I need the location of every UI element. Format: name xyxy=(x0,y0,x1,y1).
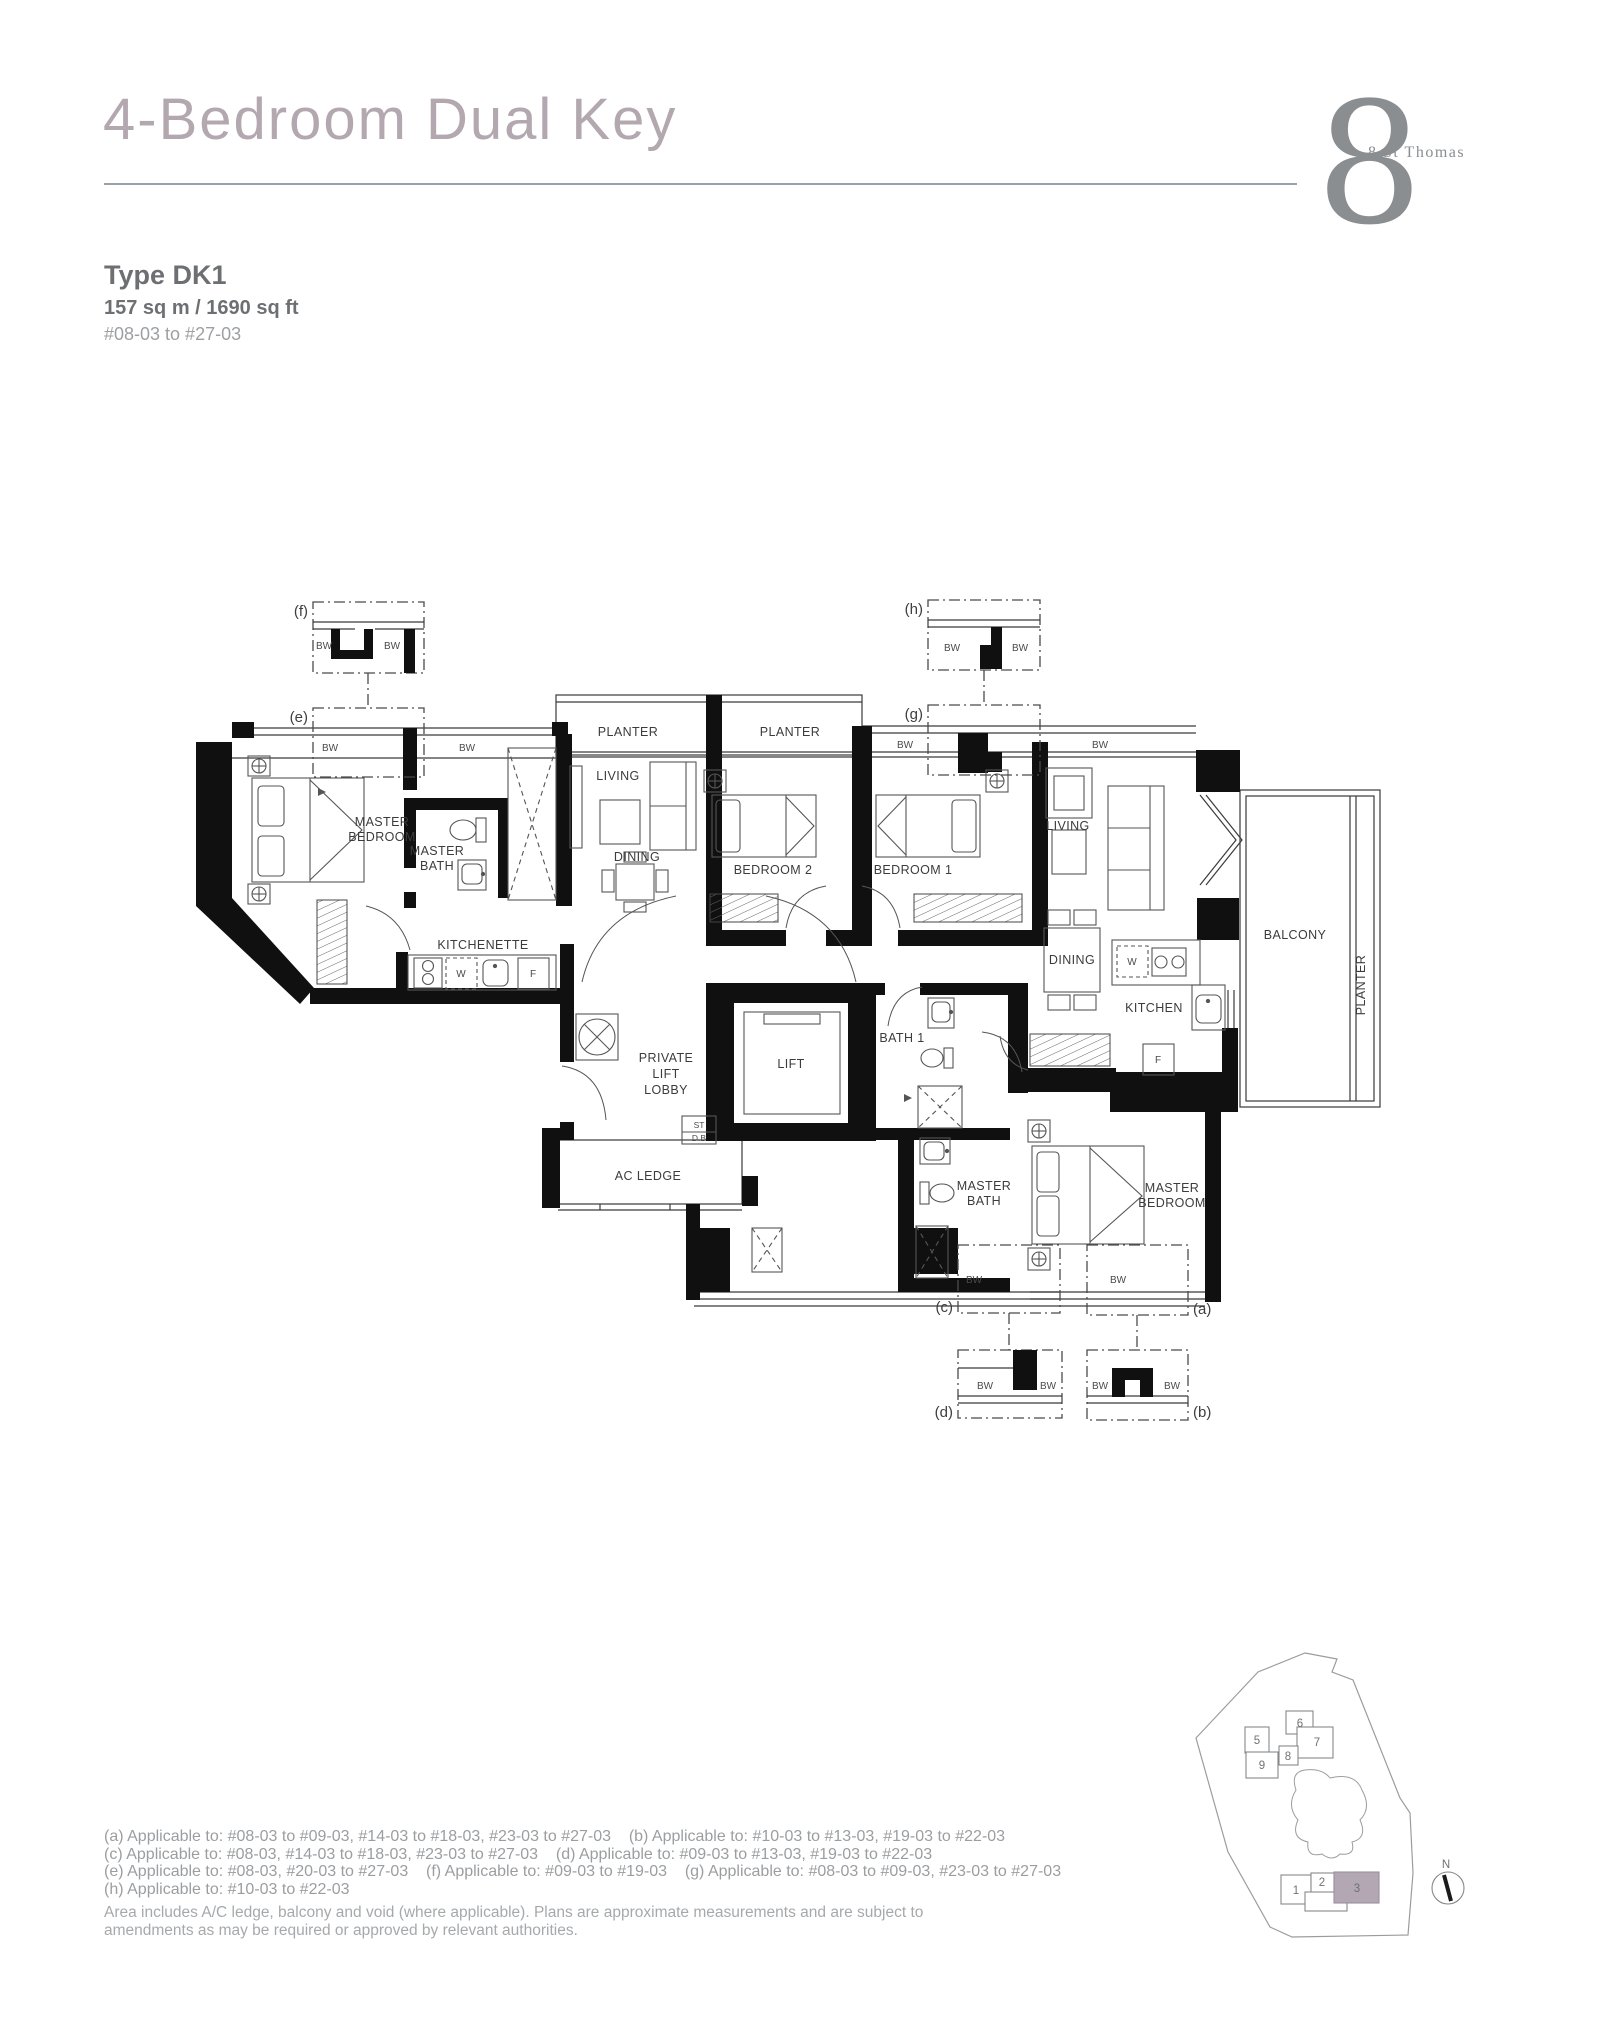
label-db: D.B xyxy=(692,1133,707,1143)
label-kitchenette: KITCHENETTE xyxy=(437,938,528,952)
label-bedroom-1: BEDROOM 1 xyxy=(874,863,953,877)
site-num-3: 3 xyxy=(1354,1883,1360,1895)
nightstand-lamp-icon-mbr xyxy=(1028,1120,1050,1270)
bw-11: BW xyxy=(977,1381,994,1392)
bw-13: BW xyxy=(1092,1381,1109,1392)
site-plan: 5 6 7 8 9 1 2 3 N xyxy=(1196,1653,1464,1937)
toilet-icon-bath-1 xyxy=(921,1048,953,1068)
footnote-line-2: (c) Applicable to: #08-03, #14-03 to #18… xyxy=(104,1846,1061,1864)
bw-1: BW xyxy=(322,743,339,754)
label-dining-left: DINING xyxy=(614,850,660,864)
label-fridge-left: F xyxy=(530,969,536,980)
label-bath-1: BATH 1 xyxy=(879,1031,924,1045)
door-marker-icon xyxy=(904,1094,912,1102)
sink-icon-bath-1 xyxy=(928,998,954,1028)
footnote-line-3: (e) Applicable to: #08-03, #20-03 to #27… xyxy=(104,1863,1061,1881)
disclaimer: Area includes A/C ledge, balcony and voi… xyxy=(104,1904,984,1939)
label-master-bedroom-left-2: BEDROOM xyxy=(348,830,415,844)
sofa-right xyxy=(1108,786,1164,910)
site-landscape xyxy=(1291,1770,1366,1858)
label-living-right: LIVING xyxy=(1046,819,1089,833)
bed-bedroom-1 xyxy=(876,795,980,857)
label-ac-ledge: AC LEDGE xyxy=(615,1169,681,1183)
label-planter-1: PLANTER xyxy=(598,725,658,739)
bed-bedroom-2 xyxy=(712,795,816,857)
label-washer-right: W xyxy=(1127,957,1137,968)
label-planter-2: PLANTER xyxy=(760,725,820,739)
coffee-table-right xyxy=(1052,830,1086,874)
bw-10: BW xyxy=(1110,1275,1127,1286)
label-master-bedroom-right-1: MASTER xyxy=(1145,1181,1200,1195)
callout-h: (h) xyxy=(905,601,923,618)
bw-2: BW xyxy=(459,743,476,754)
coffee-table-left xyxy=(600,800,640,844)
label-master-bath-right-2: BATH xyxy=(967,1194,1001,1208)
label-private-lift-lobby-1: PRIVATE xyxy=(639,1051,693,1065)
label-balcony: BALCONY xyxy=(1264,928,1327,942)
site-num-2: 2 xyxy=(1319,1877,1325,1889)
label-master-bath-left-2: BATH xyxy=(420,859,454,873)
site-num-8: 8 xyxy=(1285,1751,1291,1763)
label-lift: LIFT xyxy=(777,1057,804,1071)
callout-g: (g) xyxy=(905,706,923,723)
footnotes: (a) Applicable to: #08-03 to #09-03, #14… xyxy=(104,1828,1061,1898)
footnote-line-4: (h) Applicable to: #10-03 to #22-03 xyxy=(104,1881,1061,1899)
wardrobe-x-left xyxy=(508,748,556,900)
callout-b: (b) xyxy=(1193,1404,1211,1421)
label-st: ST xyxy=(694,1120,705,1130)
bw-14: BW xyxy=(1164,1381,1181,1392)
bw-9: BW xyxy=(966,1275,983,1286)
callout-d: (d) xyxy=(935,1404,953,1421)
brochure-page: 4-Bedroom Dual Key 8 8 St Thomas Type DK… xyxy=(0,0,1600,2042)
sink-icon-master-bath-left xyxy=(458,860,486,890)
bw-3: BW xyxy=(897,740,914,751)
label-dining-right: DINING xyxy=(1049,953,1095,967)
label-master-bath-left-1: MASTER xyxy=(410,844,465,858)
footnote-line-1: (a) Applicable to: #08-03 to #09-03, #14… xyxy=(104,1828,1061,1846)
site-num-5: 5 xyxy=(1254,1735,1260,1747)
label-planter-balcony: PLANTER xyxy=(1354,955,1368,1015)
duct-icon-bottom xyxy=(752,1228,782,1272)
label-master-bath-right-1: MASTER xyxy=(957,1179,1012,1193)
label-washer-left: W xyxy=(456,969,466,980)
walls xyxy=(196,695,1240,1302)
label-master-bedroom-right-2: BEDROOM xyxy=(1138,1196,1205,1210)
callout-f: (f) xyxy=(294,603,308,620)
shower-bath-1 xyxy=(918,1086,962,1128)
toilet-icon-master-bath-right xyxy=(920,1182,954,1204)
bw-7: BW xyxy=(944,643,961,654)
label-kitchen: KITCHEN xyxy=(1125,1001,1183,1015)
bw-12: BW xyxy=(1040,1381,1057,1392)
bed-master-left xyxy=(252,778,364,882)
bw-4: BW xyxy=(1092,740,1109,751)
toilet-icon-master-bath-left xyxy=(450,818,486,842)
bed-master-right xyxy=(1032,1146,1144,1244)
label-private-lift-lobby-2: LIFT xyxy=(652,1067,679,1081)
sink-icon-master-bath-right xyxy=(920,1138,950,1164)
callout-e: (e) xyxy=(290,709,308,726)
floor-plan: MASTER BEDROOM MASTER BATH KITCHENETTE L… xyxy=(0,0,1600,2042)
bw-6: BW xyxy=(384,641,401,652)
compass-n: N xyxy=(1442,1859,1450,1871)
bw-8: BW xyxy=(1012,643,1029,654)
label-bedroom-2: BEDROOM 2 xyxy=(734,863,813,877)
label-living-left: LIVING xyxy=(596,769,639,783)
site-num-9: 9 xyxy=(1259,1760,1265,1772)
armchair-right xyxy=(1046,768,1092,818)
site-num-1: 1 xyxy=(1293,1885,1299,1897)
compass-icon: N xyxy=(1432,1859,1464,1904)
callout-a: (a) xyxy=(1193,1301,1211,1318)
label-fridge-right: F xyxy=(1155,1055,1161,1066)
site-num-6: 6 xyxy=(1297,1718,1303,1730)
label-private-lift-lobby-3: LOBBY xyxy=(644,1083,688,1097)
bw-5: BW xyxy=(316,641,333,652)
nightstand-lamp-icon-b1 xyxy=(986,770,1008,792)
sofa-left xyxy=(650,762,696,850)
label-master-bedroom-left-1: MASTER xyxy=(355,815,410,829)
site-num-7: 7 xyxy=(1314,1737,1320,1749)
callout-c: (c) xyxy=(936,1299,954,1316)
duct-icon-lobby xyxy=(576,1014,618,1060)
